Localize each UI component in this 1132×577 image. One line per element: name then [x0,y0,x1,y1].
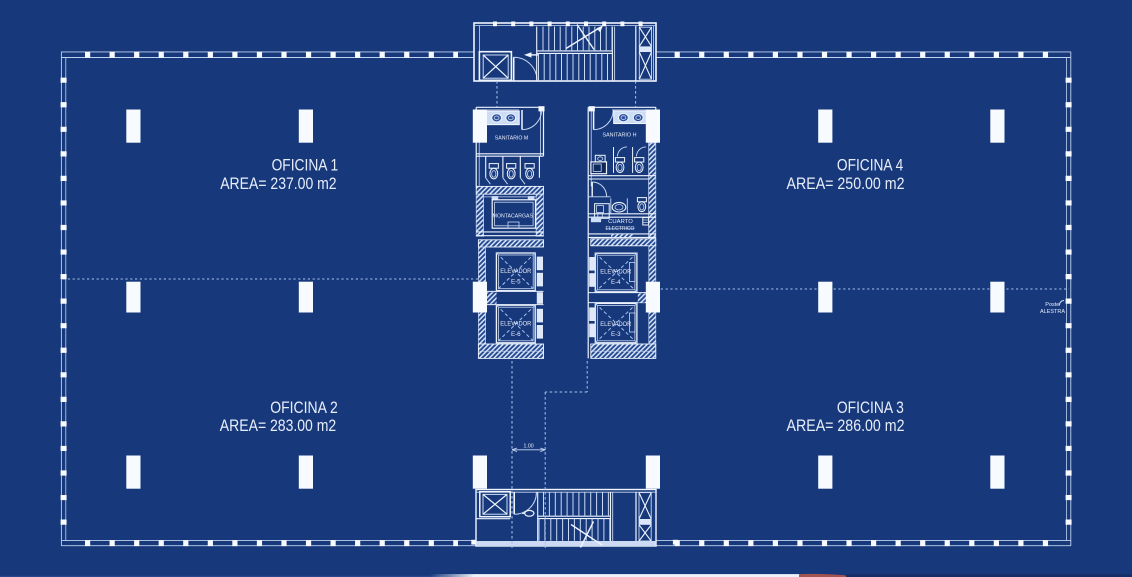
svg-text:AREA= 283.00 m2: AREA= 283.00 m2 [220,416,336,435]
svg-text:MONTACARGAS: MONTACARGAS [493,214,534,220]
svg-text:AREA= 286.00 m2: AREA= 286.00 m2 [787,416,905,435]
svg-text:AREA= 250.00 m2: AREA= 250.00 m2 [787,174,905,193]
svg-text:ELECTRICO: ELECTRICO [606,226,635,232]
svg-text:E-3: E-3 [611,331,621,338]
svg-text:CUARTO: CUARTO [608,219,633,225]
svg-text:ELEVADOR: ELEVADOR [600,268,631,275]
svg-text:OFICINA 3: OFICINA 3 [837,398,904,417]
svg-text:ELEVADOR: ELEVADOR [600,321,631,328]
svg-text:E-5: E-5 [511,279,521,286]
svg-text:ELEVADOR: ELEVADOR [500,321,531,328]
svg-text:OFICINA 4: OFICINA 4 [837,155,903,174]
svg-text:AREA= 237.00 m2: AREA= 237.00 m2 [220,174,336,193]
svg-text:OFICINA 1: OFICINA 1 [272,155,339,174]
svg-text:Poste: Poste [1045,302,1059,308]
svg-text:SANITARIO H: SANITARIO H [603,133,637,139]
svg-text:1.00: 1.00 [524,443,534,449]
svg-text:OFICINA 2: OFICINA 2 [270,398,338,417]
svg-text:ELEVADOR: ELEVADOR [500,268,531,275]
svg-text:E-4: E-4 [611,279,621,286]
svg-text:E-6: E-6 [511,331,521,338]
svg-text:SANITARIO M: SANITARIO M [495,136,529,142]
svg-text:ALESTRA: ALESTRA [1040,309,1066,315]
